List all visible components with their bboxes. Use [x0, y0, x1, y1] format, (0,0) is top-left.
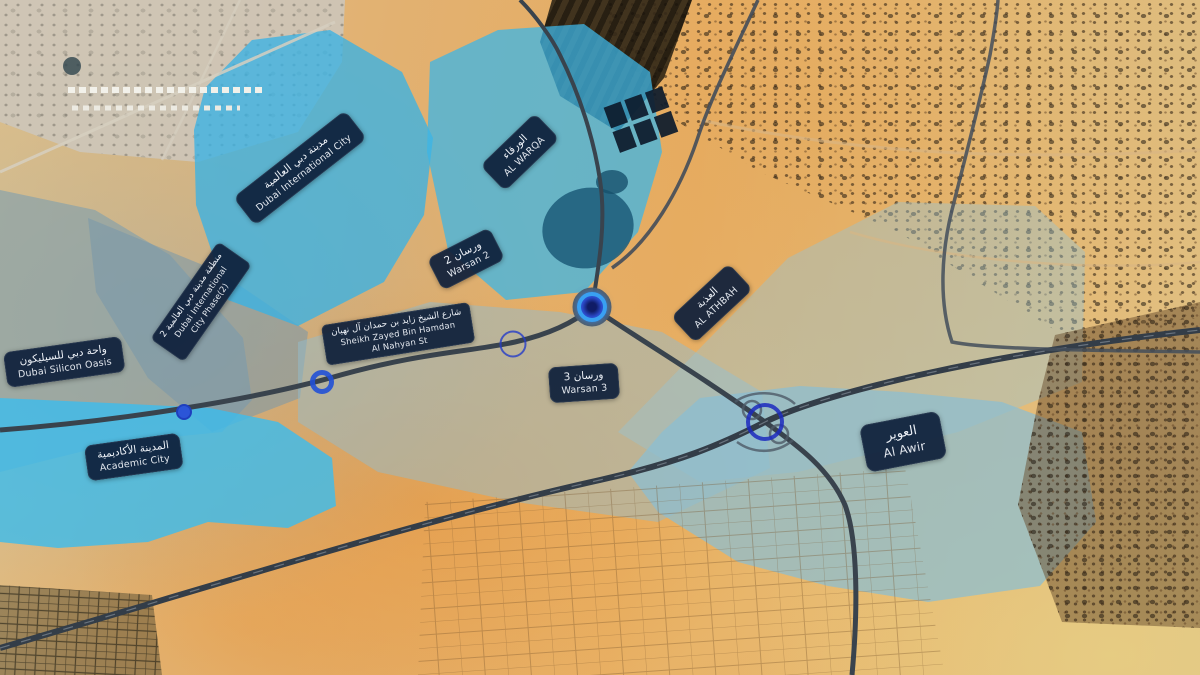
labels-layer: مدينة دبي العالميةDubai International Ci… [0, 0, 1200, 675]
label-line-en: Warsan 3 [561, 382, 608, 398]
map-label-al-athbah[interactable]: العذبةAL ATHBAH [671, 263, 754, 344]
map-label-sheikh-zayed-bin-hamdan-al-nahyan-st[interactable]: شارع الشيخ زايد بن حمدان آل نهيانSheikh … [321, 302, 475, 366]
map-label-academic-city[interactable]: المدينة الأكاديميةAcademic City [84, 432, 184, 481]
satellite-map-canvas[interactable]: مدينة دبي العالميةDubai International Ci… [0, 0, 1200, 675]
map-label-warsan-3[interactable]: ورسان 3Warsan 3 [548, 363, 620, 404]
map-label-al-awir[interactable]: العويرAl Awir [859, 411, 947, 474]
map-label-dubai-international-city[interactable]: مدينة دبي العالميةDubai International Ci… [233, 110, 367, 226]
label-line-en: Dubai International City [254, 132, 355, 214]
map-label-warsan-2[interactable]: ورسان 2Warsan 2 [427, 227, 506, 291]
label-line-ar: مدينة دبي العالمية [246, 121, 347, 204]
map-label-al-warqa[interactable]: الورقاءAL WARQA [480, 113, 560, 192]
map-label-dubai-silicon-oasis[interactable]: واحة دبي للسيليكونDubai Silicon Oasis [3, 336, 125, 388]
map-label-dic-phase-2[interactable]: منطقة مدينة دبي العالمية 2Dubai Internat… [150, 242, 252, 363]
